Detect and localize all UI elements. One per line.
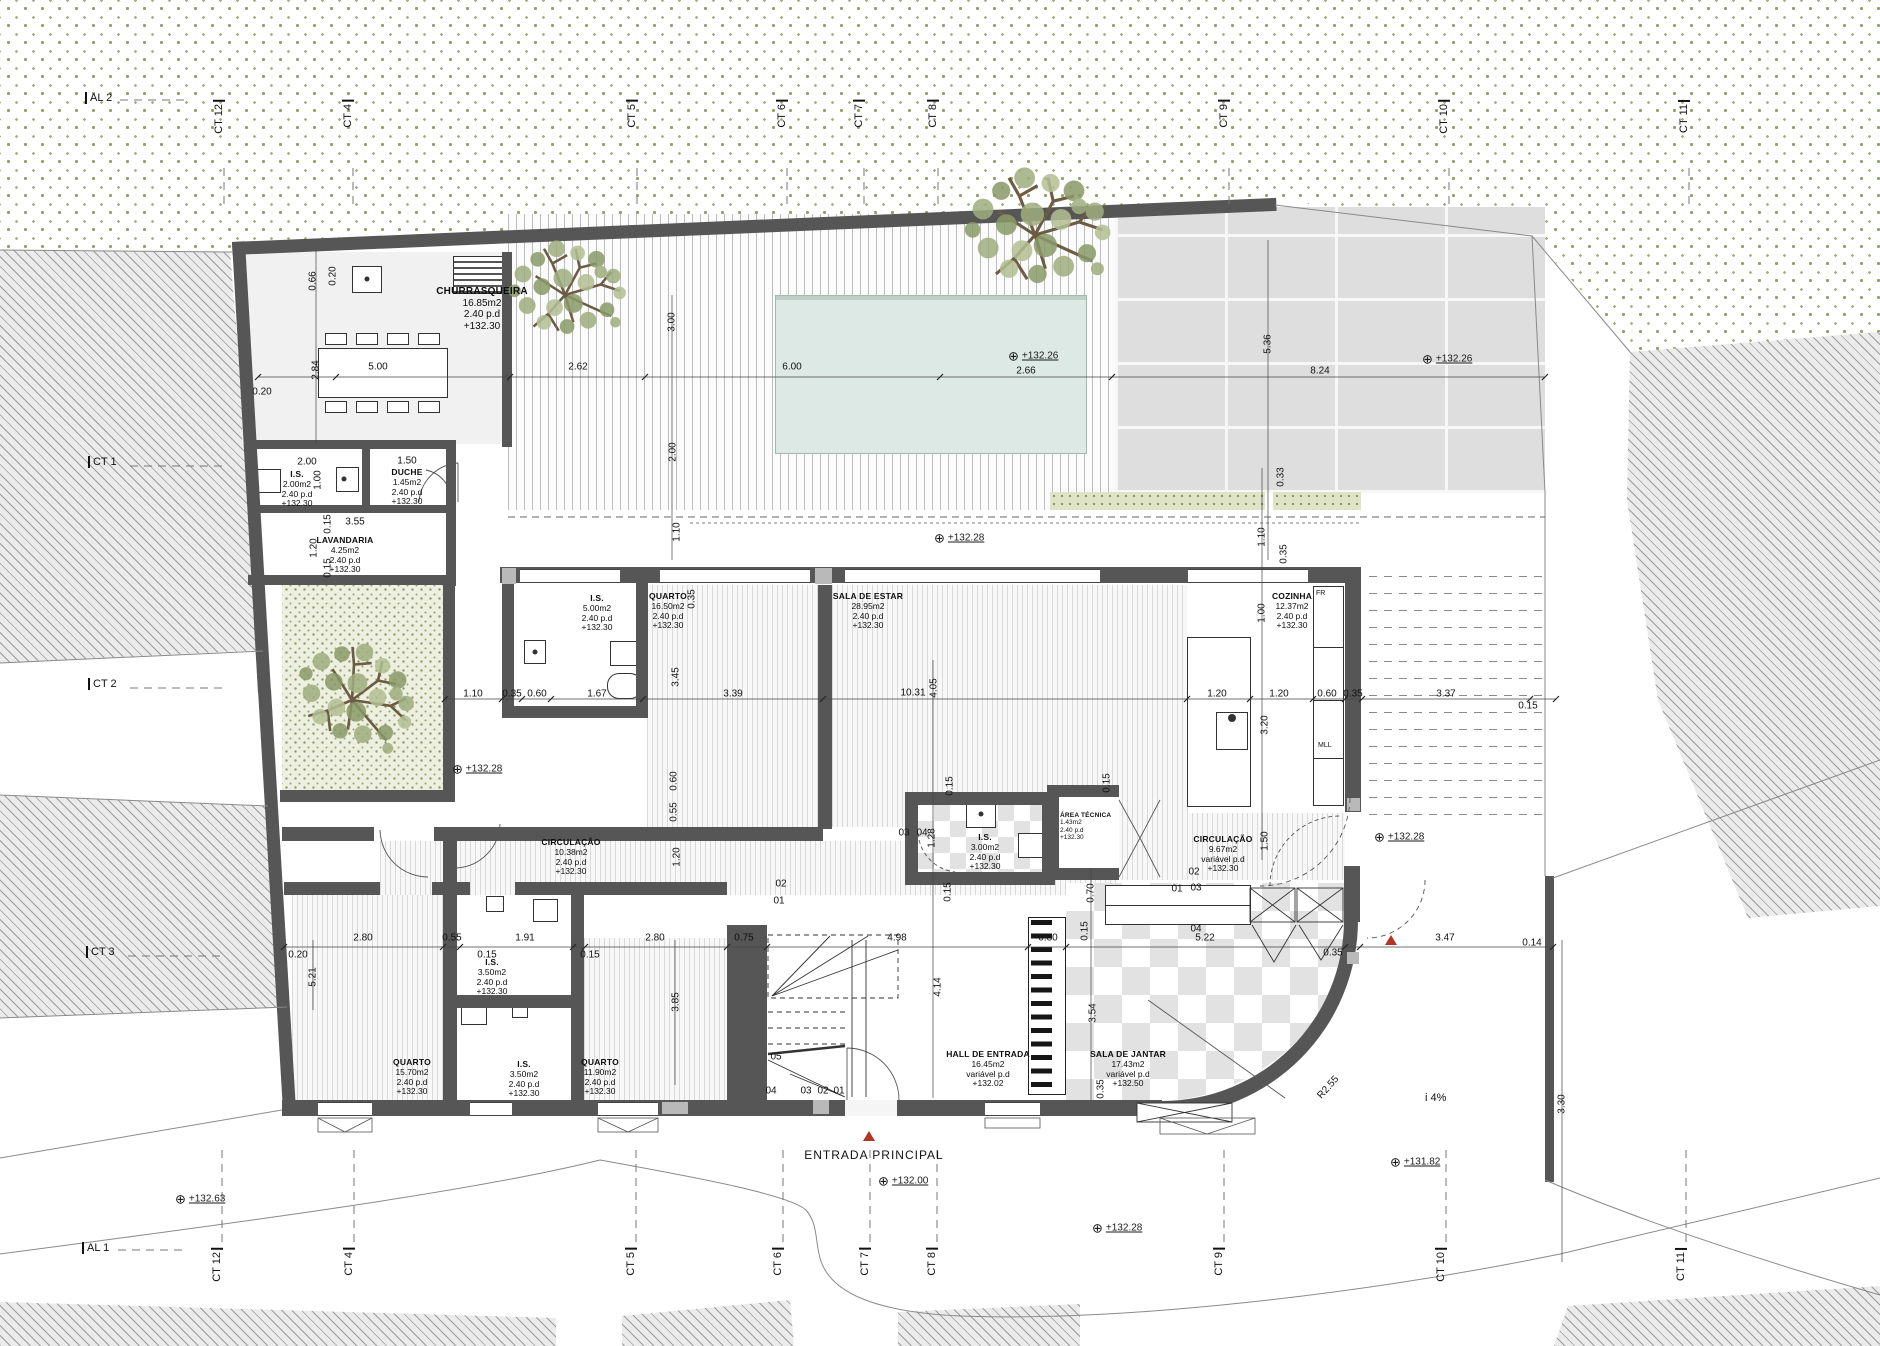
fridge-label: FR [1316,590,1325,597]
grid-label-al1: AL 1 [82,1242,109,1254]
level-symbol: ⊕ [1092,1222,1103,1235]
room-label-quarto11: QUARTO11.90m22.40 p.d+132.30 [581,1058,619,1097]
dimension: 6.00 [782,362,801,373]
grid-label-ct11-bottom: CT 11 [1675,1248,1687,1281]
wall-lav-bottom [248,575,454,585]
dimension: 0.33 [1276,467,1287,486]
dimension: 1.00 [1257,603,1268,622]
wall-is3-left [905,792,918,885]
chair [325,401,347,413]
dimension: 3.47 [1435,933,1454,944]
dimension: 1.20 [1207,689,1226,700]
chair [356,333,378,345]
dimension: 3.55 [345,517,364,528]
vanity [524,640,546,664]
step-number: 03 [1190,883,1201,894]
dimension: 0.20 [288,950,307,961]
wall-cap [815,568,832,584]
floor-stone-paving [1115,207,1545,493]
dimension: 3.20 [1260,715,1271,734]
room-label-circulacao9: CIRCULAÇÃO9.67m2variável p.d+132.30 [1193,835,1252,874]
toilet [486,896,504,912]
room-label-quarto15: QUARTO15.70m22.40 p.d+132.30 [393,1058,431,1097]
washbasin [966,801,996,828]
wall-churrasqueira-right [502,252,512,447]
dimension: 2.84 [311,360,322,379]
wall-corridor-top-b [434,827,823,841]
toilet [610,641,638,666]
level-symbol: ⊕ [1390,1156,1401,1169]
outdoor-sink [352,266,382,293]
unit-divider [1313,647,1344,648]
level-symbol: ⊕ [1008,350,1019,363]
level-marker: ⊕+132.28 [934,532,984,545]
dimension: 0.15 [323,514,334,533]
level-marker: ⊕+132.26 [1008,350,1058,363]
dimension: 5.36 [1263,334,1274,353]
dimension: 3.00 [667,312,678,331]
grid-label-ct3: CT 3 [86,946,115,958]
room-label-is35b: I.S.3.50m22.40 p.d+132.30 [509,1060,540,1099]
room-label-is2: I.S.2.00m22.40 p.d+132.30 [282,470,313,509]
dimension: 1.00 [313,470,324,489]
step-number: 03 [800,1086,811,1097]
dimension: 4.05 [929,678,940,697]
window [660,569,810,583]
level-marker: ⊕+132.28 [452,763,502,776]
grid-label-ct5-top: CT 5 [626,100,638,128]
wall-courtyard-bottom [280,790,455,802]
grid-label-ct11-top: CT 11 [1678,100,1690,133]
dimension: 3.85 [671,992,682,1011]
dimension: 3.45 [671,667,682,686]
window [520,569,620,583]
main-entrance-label: ENTRADA PRINCIPAL [804,1148,943,1162]
level-symbol: ⊕ [934,532,945,545]
side-entrance-marker [1385,935,1397,945]
chair [325,333,347,345]
grid-label-ct10-top: CT 10 [1438,100,1450,134]
wall-is-duche-divider [362,447,370,509]
dimension: 2.66 [1016,366,1035,377]
dimension: 1.67 [587,689,606,700]
chair [387,401,409,413]
island-sink [1216,712,1248,750]
dimension: 1.20 [1269,689,1288,700]
grid-label-ct10-bottom: CT 10 [1435,1248,1447,1282]
dimension: 0.55 [442,933,461,944]
dimension: 2.80 [645,933,664,944]
room-label-circulacao10: CIRCULAÇÃO10.38m22.40 p.d+132.30 [541,838,600,877]
level-marker: ⊕+132.63 [175,1193,225,1206]
level-marker: ⊕+132.28 [1374,831,1424,844]
dimension: 0.35 [1279,544,1290,563]
window [470,1102,512,1116]
window [318,1102,372,1116]
wall-is5-right [636,568,648,718]
grid-label-ct2: CT 2 [88,678,117,690]
level-marker: ⊕+132.28 [1092,1222,1142,1235]
chair [418,333,440,345]
wall-quarto-sala-divider [818,585,832,829]
washbasin [533,899,558,922]
dimension: 3.54 [1088,1003,1099,1022]
radius-label: R2.55 [1315,1074,1341,1101]
dimension: 0.15 [1518,701,1537,712]
step-number: 02 [1188,867,1199,878]
grid-label-ct12-top: CT 12 [213,100,225,134]
ramp-slope-label: i 4% [1425,1092,1446,1104]
window [598,1102,658,1116]
dimension: 3.30 [1557,1094,1568,1113]
chair [387,333,409,345]
courtyard-garden [282,585,443,792]
dimension: 0.35 [1343,689,1362,700]
room-label-quarto16: QUARTO16.50m22.40 p.d+132.30 [649,592,687,631]
dimension: 0.60 [669,771,680,790]
dimension: 0.35 [687,589,698,608]
grid-label-ct8-top: CT 8 [927,100,939,128]
dimension: 2.80 [353,933,372,944]
dimension: 0.70 [1086,883,1097,902]
step-number: 02 [775,879,786,890]
dimension: 1.10 [463,689,482,700]
dimension: 1.10 [672,522,683,541]
wall-stair-column [727,925,767,1102]
grid-label-ct1: CT 1 [88,456,117,468]
grid-label-ct9-bottom: CT 9 [1213,1248,1225,1276]
dimension: 0.60 [527,689,546,700]
washbasin [336,467,359,492]
unit-divider [1313,758,1344,759]
dimension: 0.15 [477,950,496,961]
wall-at-left [1047,785,1059,880]
pool [775,295,1087,454]
door-opening-entrance [845,1100,897,1116]
dimension: 8.24 [1310,366,1329,377]
grid-label-ct7-bottom: CT 7 [859,1248,871,1276]
level-symbol: ⊕ [452,763,463,776]
dimension: 0.66 [308,271,319,290]
grid-label-ct7-top: CT 7 [853,100,865,128]
washer [257,469,281,493]
wall-cap [1347,952,1359,964]
step-number: 01 [1171,884,1182,895]
dimension: 3.39 [723,689,742,700]
wall-is-row-top [248,440,454,449]
window [985,1102,1040,1116]
step-number: 02 [817,1086,828,1097]
dimension: 0.60 [1317,689,1336,700]
floor-plan-canvas: CHURRASQUEIRA16.85m22.40 p.d+132.30 I.S.… [0,0,1880,1346]
grid-label-ct6-bottom: CT 6 [772,1248,784,1276]
grid-label-ct12-bottom: CT 12 [211,1248,223,1282]
wall-is3-top [905,792,1055,805]
wall-rooms-top-c [515,882,727,895]
room-label-cozinha: COZINHA12.37m22.40 p.d+132.30 [1272,592,1312,631]
room-label-churrasqueira: CHURRASQUEIRA16.85m22.40 p.d+132.30 [436,286,528,332]
step-number: 01 [773,896,784,907]
dimension: 0.35 [1323,948,1342,959]
step-number: 05 [770,1052,781,1063]
room-label-duche: DUCHE1.45m22.40 p.d+132.30 [391,468,422,507]
wall-cap [813,1100,829,1114]
window [845,569,1100,583]
dimension: 2.00 [668,442,679,461]
room-label-sala-estar: SALA DE ESTAR28.95m22.40 p.d+132.30 [833,592,903,631]
level-symbol: ⊕ [175,1193,186,1206]
level-marker: ⊕+132.26 [1422,353,1472,366]
dimension: 0.20 [252,387,271,398]
room-label-is35a: I.S.3.50m22.40 p.d+132.30 [477,958,508,997]
level-symbol: ⊕ [878,1175,889,1188]
wall-right-boundary [1545,876,1554,1182]
wall-corridor-top-a [282,827,374,841]
level-marker: ⊕+131.82 [1390,1156,1440,1169]
wall-cap [1347,798,1360,811]
wall-rooms-top-a [284,882,380,895]
dimension: 1.50 [1260,831,1271,850]
wall-right-lower [1344,866,1360,922]
dimension: 0.80 [1038,933,1057,944]
dimension: 1.20 [309,538,320,557]
hedge-strip-2 [1273,492,1361,510]
chair [418,401,440,413]
grid-label-ct4-top: CT 4 [342,100,354,128]
dimension: 0.14 [1522,938,1541,949]
grid-label-ct4-bottom: CT 4 [343,1248,355,1276]
grid-label-ct9-top: CT 9 [1218,100,1230,128]
wall-is3-bottom [905,872,1055,885]
sideboard-line [1105,905,1251,906]
dimension: 0.15 [580,950,599,961]
appliance-label: MLL [1318,742,1332,749]
chair [356,401,378,413]
dimension: 2.62 [568,362,587,373]
dimension: 0.15 [945,776,956,795]
dimension: 0.15 [943,882,954,901]
entrance-marker [863,1131,875,1141]
step-number: 04 [916,828,927,839]
dimension: 0.20 [328,266,339,285]
dimension: 0.15 [1102,773,1113,792]
window [1188,569,1308,583]
dimension: 2.00 [297,457,316,468]
wall-x443 [443,841,457,1102]
dimension: 0.35 [502,689,521,700]
dining-table [318,348,448,398]
wall-cap [502,568,516,584]
dimension: 1.28 [927,828,938,847]
dimension: 0.35 [1096,1079,1107,1098]
wall-cap [662,1102,688,1114]
step-number: 03 [898,828,909,839]
shelf-slots [1031,920,1052,1092]
dimension: 5.21 [308,967,319,986]
dimension: 3.37 [1436,689,1455,700]
dimension: 4.98 [887,933,906,944]
grid-label-al2: AL 2 [85,92,112,104]
dimension: 1.10 [1257,527,1268,546]
step-number: 04 [1190,924,1201,935]
room-label-hall: HALL DE ENTRADA16.45m2variável p.d+132.0… [946,1050,1030,1089]
dimension: 0.75 [734,933,753,944]
hedge-strip-1 [1050,492,1265,510]
room-label-is5: I.S.5.00m22.40 p.d+132.30 [582,594,613,633]
step-number: 04 [765,1086,776,1097]
grid-label-ct6-top: CT 6 [776,100,788,128]
dimension: 1.50 [397,456,416,467]
level-symbol: ⊕ [1422,353,1433,366]
shelf-unit [1028,917,1066,1095]
dimension: 0.15 [1080,921,1091,940]
level-marker: ⊕+132.00 [878,1175,928,1188]
grid-label-ct5-bottom: CT 5 [625,1248,637,1276]
wall-duche-right [446,440,456,586]
unit-divider [1313,700,1344,701]
step-number: 01 [833,1086,844,1097]
room-label-is3: I.S.3.00m22.40 p.d+132.30 [970,833,1001,872]
level-symbol: ⊕ [1374,831,1385,844]
porch-marks [318,1118,1255,1134]
dimension: 1.91 [515,933,534,944]
dimension: 10.31 [900,688,925,699]
dimension: 1.20 [672,847,683,866]
wall-is5-bottom [502,706,648,718]
grid-label-ct8-bottom: CT 8 [926,1248,938,1276]
dimension: 0.15 [323,558,334,577]
room-label-area-tecnica: ÁREA TÉCNICA1.43m22.40 p.d+132.30 [1060,812,1111,842]
dimension: 0.55 [669,802,680,821]
dimension: 4.14 [933,977,944,996]
dimension: 5.00 [368,362,387,373]
